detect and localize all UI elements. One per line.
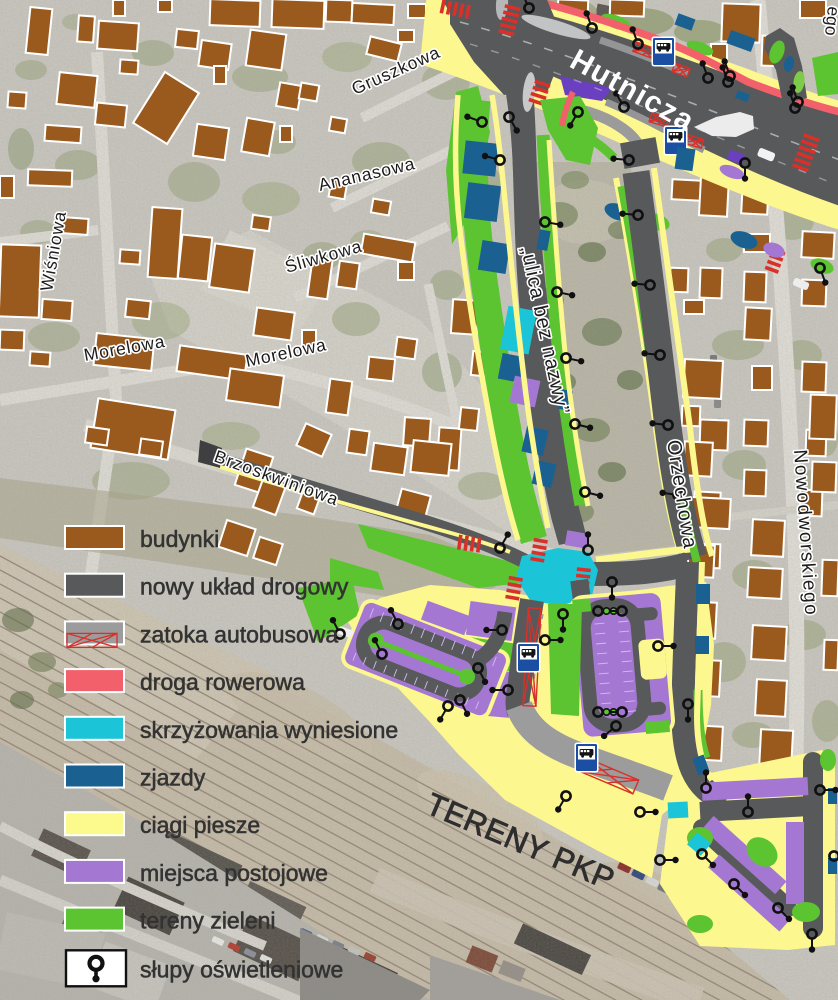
- svg-text:ciągi piesze: ciągi piesze: [140, 812, 260, 838]
- svg-text:budynki: budynki: [140, 526, 219, 552]
- svg-text:skrzyżowania wyniesione: skrzyżowania wyniesione: [140, 717, 398, 743]
- svg-text:miejsca postojowe: miejsca postojowe: [140, 860, 328, 886]
- svg-text:tereny zieleni: tereny zieleni: [140, 908, 276, 934]
- svg-text:słupy oświetleniowe: słupy oświetleniowe: [140, 956, 343, 982]
- svg-text:zjazdy: zjazdy: [140, 765, 206, 791]
- svg-text:zatoka autobusowa: zatoka autobusowa: [140, 621, 338, 647]
- svg-text:droga rowerowa: droga rowerowa: [140, 669, 305, 695]
- svg-text:nowy układ drogowy: nowy układ drogowy: [140, 574, 349, 600]
